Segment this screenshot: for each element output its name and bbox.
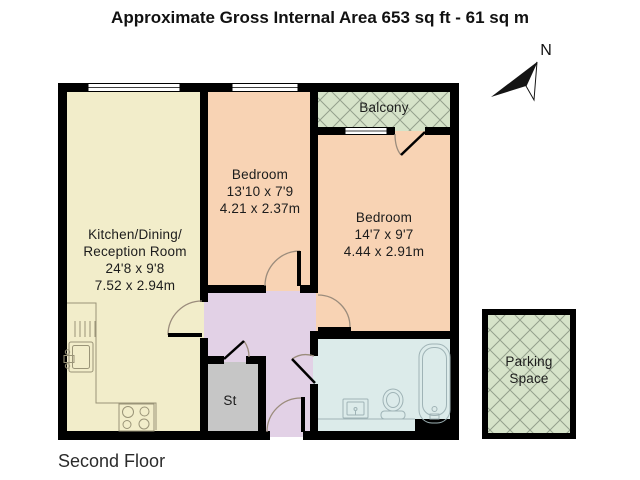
bedroom-middle-door-leaf [297, 251, 301, 286]
storage-name: St [200, 392, 260, 409]
bedroom-right-name: Bedroom [313, 209, 455, 226]
kitchen-dims-metric: 7.52 x 2.94m [62, 277, 208, 294]
kitchen-door-leaf [168, 333, 202, 337]
bedroom-middle-name: Bedroom [204, 166, 316, 183]
room-label-parking: Parking Space [482, 353, 576, 387]
bedroom-right-door-leaf [318, 327, 351, 331]
bedroom-right-dims-imperial: 14'7 x 9'7 [313, 226, 455, 243]
bedroom-right-dims-metric: 4.44 x 2.91m [313, 243, 455, 260]
parking-name-line2: Space [482, 370, 576, 387]
north-arrow-icon [491, 62, 537, 100]
floor-plan-page: Approximate Gross Internal Area 653 sq f… [0, 0, 640, 480]
kitchen-name-line1: Kitchen/Dining/ [62, 226, 208, 243]
entrance-door-leaf [301, 397, 305, 432]
room-label-bedroom-middle: Bedroom 13'10 x 7'9 4.21 x 2.37m [204, 166, 316, 217]
floor-label: Second Floor [58, 451, 165, 472]
bedroom-middle-dims-imperial: 13'10 x 7'9 [204, 183, 316, 200]
room-label-balcony: Balcony [313, 99, 455, 116]
room-label-storage: St [200, 392, 260, 409]
kitchen-name-line2: Reception Room [62, 243, 208, 260]
bedroom-middle-dims-metric: 4.21 x 2.37m [204, 200, 316, 217]
north-label: N [531, 42, 561, 60]
room-label-kitchen: Kitchen/Dining/ Reception Room 24'8 x 9'… [62, 226, 208, 294]
balcony-name: Balcony [313, 99, 455, 116]
kitchen-dims-imperial: 24'8 x 9'8 [62, 260, 208, 277]
room-label-bedroom-right: Bedroom 14'7 x 9'7 4.44 x 2.91m [313, 209, 455, 260]
parking-name-line1: Parking [482, 353, 576, 370]
